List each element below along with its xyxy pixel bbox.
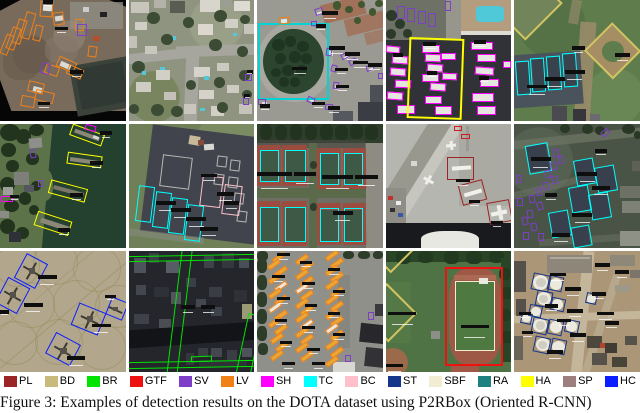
label-chip [355, 175, 378, 179]
legend-label: RA [493, 376, 508, 387]
scene-shape [333, 1, 342, 9]
figure-3-page: PLBDBRGTFSVLVSHTCBCSTSBFRAHASPHC Figure … [0, 0, 640, 413]
legend-swatch-GTF [130, 376, 143, 387]
cell-residential-area [129, 0, 255, 121]
scene-shape [610, 255, 635, 266]
detection-box-TC [344, 153, 363, 185]
label-chip [316, 24, 326, 28]
scene-shape [0, 211, 9, 218]
detection-box-LV [270, 349, 284, 361]
scene-shape [217, 63, 230, 71]
scene-shape [466, 251, 482, 264]
scene-shape [0, 0, 22, 14]
scene-shape [0, 111, 126, 121]
detection-box-SV [523, 232, 529, 240]
scene-shape [129, 104, 139, 114]
scene-shape [333, 362, 356, 372]
scene-shape [275, 125, 288, 140]
detection-box-ST [547, 275, 565, 292]
label-chip [307, 348, 320, 351]
cell-helipad-field [0, 251, 126, 372]
scene-shape [136, 82, 151, 92]
scene-shape [421, 231, 479, 248]
scene-shape [93, 36, 101, 41]
detection-box-SH [477, 54, 496, 62]
scene-shape [418, 251, 433, 263]
scene-shape [200, 108, 205, 112]
scene-shape [411, 161, 417, 166]
detection-box-SV [550, 162, 558, 171]
scene-shape [145, 46, 158, 54]
label-chip [302, 282, 315, 285]
label-chip [522, 331, 533, 335]
label-chip [479, 76, 489, 80]
label-chip [570, 333, 586, 337]
scene-shape [395, 19, 405, 29]
legend-swatch-SH [261, 376, 274, 387]
label-chip [572, 46, 585, 50]
detection-box-SV [544, 169, 551, 178]
detection-box-SV [536, 202, 544, 211]
label-chip [156, 201, 176, 205]
cell-bus-depot [257, 251, 383, 372]
detection-box-LV [300, 350, 314, 362]
legend-swatch-SP [563, 376, 576, 387]
detection-box-TC [570, 224, 592, 248]
label-chip [333, 211, 353, 215]
scene-shape [0, 321, 38, 365]
legend-swatch-HC [605, 376, 618, 387]
scene-shape [612, 357, 627, 367]
scene-shape [131, 2, 149, 13]
label-chip [336, 85, 349, 89]
label-chip [260, 104, 270, 108]
scene-shape [222, 0, 232, 7]
detection-box-TC [285, 207, 305, 242]
cell-track-and-field [386, 251, 512, 372]
label-chip [595, 149, 608, 153]
detection-box-PL [447, 157, 473, 179]
scene-shape [622, 124, 635, 134]
cell-airport-apron [386, 124, 512, 248]
scene-shape [217, 102, 228, 113]
legend-label: HA [536, 376, 551, 387]
scene-shape [625, 336, 638, 346]
legend-item-HC: HC [605, 376, 636, 387]
scene-shape [358, 102, 383, 121]
legend-swatch-BD [45, 376, 58, 387]
scene-shape [227, 350, 237, 360]
scene-shape [183, 17, 194, 28]
detection-box-SV [517, 198, 523, 206]
scene-shape [227, 85, 240, 93]
detection-box-SV [38, 180, 43, 187]
legend-label: SBF [444, 376, 465, 387]
scene-shape [365, 125, 378, 140]
scene-shape [634, 131, 640, 138]
label-chip [335, 68, 348, 72]
detection-box-TC [260, 150, 279, 182]
scene-shape [257, 188, 366, 198]
cell-storage-tank-farm [514, 251, 640, 372]
label-chip [322, 11, 337, 15]
scene-shape [461, 31, 511, 35]
scene-shape [358, 251, 371, 259]
legend-label: HC [620, 376, 636, 387]
detection-box-SH [472, 93, 493, 101]
label-chip [333, 290, 346, 293]
scene-shape [258, 343, 268, 355]
detection-box-SV [77, 24, 87, 36]
scene-shape [204, 143, 214, 150]
scene-shape [370, 85, 383, 102]
label-chip [519, 312, 530, 316]
scene-shape [211, 348, 221, 358]
scene-shape [350, 124, 363, 139]
scene-shape [154, 0, 167, 8]
scene-shape [257, 309, 267, 324]
detection-box-LV [21, 94, 36, 107]
detection-box-TC [546, 55, 562, 90]
label-chip [24, 303, 43, 307]
legend-swatch-TC [304, 376, 317, 387]
legend-item-BR: BR [87, 376, 117, 387]
legend-swatch-SBF [429, 376, 442, 387]
label-chip [300, 261, 313, 264]
scene-shape [620, 231, 640, 246]
legend-item-SP: SP [563, 376, 593, 387]
cell-boat-storage-lot [386, 0, 512, 121]
detection-box-SV [428, 13, 436, 26]
label-chip [531, 157, 551, 161]
scene-shape [209, 39, 222, 51]
label-chip [333, 333, 346, 336]
label-chip [70, 70, 83, 74]
scene-shape [390, 208, 395, 212]
scene-shape [560, 124, 570, 133]
detection-box-SH [503, 61, 512, 68]
scene-shape [166, 261, 179, 273]
scene-shape [605, 343, 618, 353]
legend-item-BC: BC [345, 376, 375, 387]
scene-shape [19, 192, 32, 204]
scene-shape [573, 109, 586, 121]
scene-shape [6, 160, 19, 172]
detection-box-SH [389, 67, 406, 77]
detection-box-TC [260, 207, 279, 242]
scene-shape [160, 67, 165, 71]
scene-shape [161, 34, 172, 45]
scene-shape [136, 285, 146, 295]
detection-box-SV [245, 74, 251, 81]
label-chip [292, 67, 307, 71]
cell-tennis-courts-rooftop [257, 124, 383, 248]
scene-shape [449, 141, 453, 150]
scene-shape [592, 353, 607, 365]
detection-box-SH [477, 106, 496, 114]
label-chip [67, 356, 86, 360]
scene-shape [550, 257, 590, 259]
label-chip [38, 102, 51, 106]
label-chip [328, 312, 341, 315]
scene-shape [156, 70, 170, 80]
legend: PLBDBRGTFSVLVSHTCBCSTSBFRAHASPHC [0, 373, 640, 390]
detection-box-SV [418, 11, 426, 24]
scene-shape [630, 270, 640, 277]
legend-item-TC: TC [304, 376, 334, 387]
label-chip [328, 106, 341, 110]
label-chip [247, 70, 253, 74]
scene-shape [170, 1, 185, 13]
label-chip [312, 362, 325, 365]
detection-box-SV [558, 156, 565, 165]
scene-shape [171, 106, 182, 117]
figure-grid [0, 0, 640, 372]
scene-shape [373, 251, 383, 259]
label-chip [70, 193, 83, 197]
scene-shape [388, 196, 393, 200]
scene-shape [214, 10, 227, 22]
label-chip [105, 295, 115, 299]
label-chip [43, 0, 53, 4]
label-chip [257, 172, 292, 176]
label-chip [186, 217, 206, 221]
legend-swatch-SV [179, 376, 192, 387]
scene-shape [620, 186, 640, 198]
scene-shape [142, 71, 146, 75]
legend-item-GTF: GTF [130, 376, 167, 387]
scene-shape [173, 36, 177, 40]
detection-box-SV [368, 312, 374, 320]
label-chip [423, 42, 436, 46]
legend-label: TC [319, 376, 334, 387]
scene-shape [129, 36, 138, 48]
detection-box-HA [407, 37, 465, 120]
label-chip [469, 200, 480, 204]
legend-swatch-RA [478, 376, 491, 387]
label-chip [92, 324, 111, 328]
scene-shape [552, 106, 567, 121]
detection-box-SV [535, 188, 543, 197]
label-chip [427, 71, 437, 75]
detection-box-BR [191, 356, 213, 363]
legend-item-PL: PL [4, 376, 32, 387]
label-chip [577, 172, 597, 176]
label-chip [567, 309, 583, 313]
scene-shape [615, 285, 630, 292]
scene-shape [14, 172, 29, 184]
legend-label: PL [19, 376, 32, 387]
scene-shape [199, 90, 214, 100]
scene-shape [386, 188, 406, 223]
cell-lakeside-docks [0, 124, 126, 248]
scene-shape [198, 140, 204, 145]
detection-box-SV [516, 175, 522, 183]
label-chip [557, 319, 571, 323]
scene-shape [3, 187, 13, 194]
detection-box-LV [32, 25, 43, 42]
label-chip [0, 310, 9, 314]
detection-box-SV [397, 6, 405, 19]
detection-box-LV [278, 16, 290, 24]
detection-box-SH [387, 91, 404, 101]
label-chip [565, 70, 585, 74]
scene-shape [501, 287, 511, 299]
scene-shape [305, 125, 318, 140]
label-chip [282, 362, 295, 365]
label-chip [461, 325, 489, 329]
label-chip [592, 186, 610, 190]
label-chip [388, 312, 416, 316]
label-chip [386, 364, 404, 368]
label-chip [547, 350, 563, 354]
label-chip [597, 312, 613, 316]
cell-playground-courts [129, 124, 255, 248]
scene-shape [514, 336, 523, 360]
label-chip [217, 192, 235, 196]
label-chip [545, 77, 565, 81]
label-chip [201, 305, 215, 309]
scene-shape [257, 275, 267, 290]
scene-shape [225, 19, 238, 27]
label-chip [393, 53, 403, 57]
label-chip [329, 46, 345, 50]
scene-shape [244, 24, 254, 34]
legend-item-HA: HA [521, 376, 551, 387]
scene-shape [366, 143, 382, 248]
detection-box-LV [87, 45, 97, 57]
label-chip [302, 326, 315, 329]
label-chip [294, 172, 317, 176]
legend-label: LV [236, 376, 249, 387]
legend-item-SV: SV [179, 376, 209, 387]
scene-shape [343, 251, 354, 259]
label-chip [312, 102, 325, 106]
scene-shape [364, 29, 383, 46]
scene-shape [0, 72, 12, 117]
label-chip [100, 131, 111, 135]
scene-shape [159, 155, 193, 191]
scene-shape [396, 201, 401, 205]
label-chip [545, 193, 558, 197]
label-chip [368, 63, 382, 67]
scene-shape [154, 287, 169, 297]
detection-box-SV [378, 73, 383, 79]
scene-shape [335, 125, 348, 140]
scene-shape [240, 15, 250, 25]
detection-box-SV [243, 98, 249, 105]
label-chip [552, 233, 570, 237]
legend-item-LV: LV [221, 376, 249, 387]
scene-shape [257, 326, 267, 341]
scene-shape [184, 104, 197, 114]
legend-item-ST: ST [388, 376, 417, 387]
scene-shape [364, 347, 383, 368]
label-chip [592, 292, 606, 296]
label-chip [615, 53, 630, 57]
scene-shape [147, 12, 160, 24]
scene-shape [83, 7, 89, 12]
label-chip [181, 305, 195, 309]
legend-label: BD [60, 376, 75, 387]
scene-shape [514, 261, 525, 292]
scene-shape [237, 46, 248, 57]
detection-box-SH [475, 66, 494, 75]
scene-shape [151, 104, 164, 116]
detection-box-SV [529, 194, 536, 203]
detection-box-RA [258, 23, 328, 100]
label-chip [491, 221, 502, 225]
legend-label: SP [578, 376, 593, 387]
scene-shape [345, 6, 353, 13]
scene-shape [28, 137, 41, 148]
scene-shape [233, 33, 237, 37]
legend-label: SH [276, 376, 291, 387]
detection-box-TC [320, 153, 339, 185]
label-chip [615, 270, 629, 274]
label-chip [305, 304, 318, 307]
scene-shape [386, 29, 396, 39]
scene-shape [375, 304, 383, 316]
detection-box-TC [285, 150, 305, 182]
cell-industrial-yard [0, 0, 126, 121]
scene-shape [234, 1, 250, 11]
detection-box-SV [526, 209, 533, 218]
label-chip [572, 213, 592, 217]
scene-shape [590, 114, 600, 121]
scene-shape [234, 290, 247, 302]
label-chip [272, 275, 285, 278]
scene-shape [216, 156, 227, 168]
legend-swatch-HA [521, 376, 534, 387]
label-chip [277, 253, 290, 256]
scene-shape [230, 159, 241, 171]
scene-shape [164, 92, 177, 100]
scene-shape [24, 185, 34, 192]
legend-item-BD: BD [45, 376, 75, 387]
legend-label: BC [360, 376, 375, 387]
legend-swatch-PL [4, 376, 17, 387]
label-chip [595, 263, 610, 267]
scene-shape [257, 292, 267, 307]
scene-shape [398, 213, 403, 217]
label-chip [545, 304, 559, 308]
label-chip [565, 287, 581, 291]
scene-shape [290, 124, 303, 140]
label-chip [38, 275, 57, 279]
scene-shape [431, 331, 440, 339]
cell-roundabout [257, 0, 383, 121]
scene-shape [135, 22, 148, 30]
scene-shape [622, 201, 640, 213]
detection-box-SV [551, 175, 559, 184]
scene-shape [320, 124, 333, 140]
label-chip [90, 161, 103, 165]
detection-box-SV [530, 223, 537, 232]
label-chip [275, 319, 288, 322]
detection-box-SV [407, 8, 415, 21]
scene-shape [501, 331, 511, 343]
label-chip [550, 273, 566, 277]
cell-tennis-complex [514, 124, 640, 248]
label-chip [474, 40, 487, 44]
scene-shape [100, 12, 106, 17]
label-chip [200, 227, 218, 231]
label-chip [353, 61, 368, 65]
legend-label: SV [194, 376, 209, 387]
legend-label: GTF [145, 376, 167, 387]
detection-box-SV [445, 1, 451, 11]
